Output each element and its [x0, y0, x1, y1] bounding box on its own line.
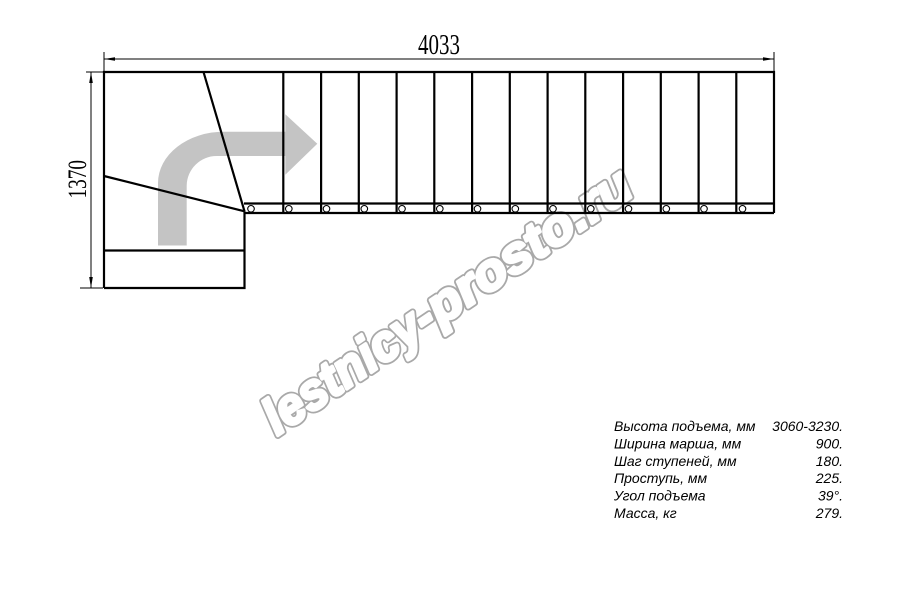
- svg-text:Масса, кг: Масса, кг: [614, 505, 677, 521]
- svg-text:Высота подъема, мм: Высота подъема, мм: [614, 418, 756, 434]
- svg-text:Угол подъема: Угол подъема: [613, 488, 706, 504]
- svg-text:225.: 225.: [815, 470, 843, 486]
- svg-text:3060-3230.: 3060-3230.: [772, 418, 843, 434]
- svg-text:1370: 1370: [63, 160, 92, 199]
- svg-text:900.: 900.: [816, 435, 843, 451]
- svg-text:Шаг ступеней, мм: Шаг ступеней, мм: [614, 453, 737, 469]
- svg-text:39°.: 39°.: [818, 488, 843, 504]
- svg-text:4033: 4033: [418, 29, 460, 61]
- svg-text:180.: 180.: [816, 453, 843, 469]
- svg-text:Ширина марша, мм: Ширина марша, мм: [614, 435, 742, 451]
- svg-text:Проступь, мм: Проступь, мм: [614, 470, 708, 486]
- svg-text:279.: 279.: [815, 505, 843, 521]
